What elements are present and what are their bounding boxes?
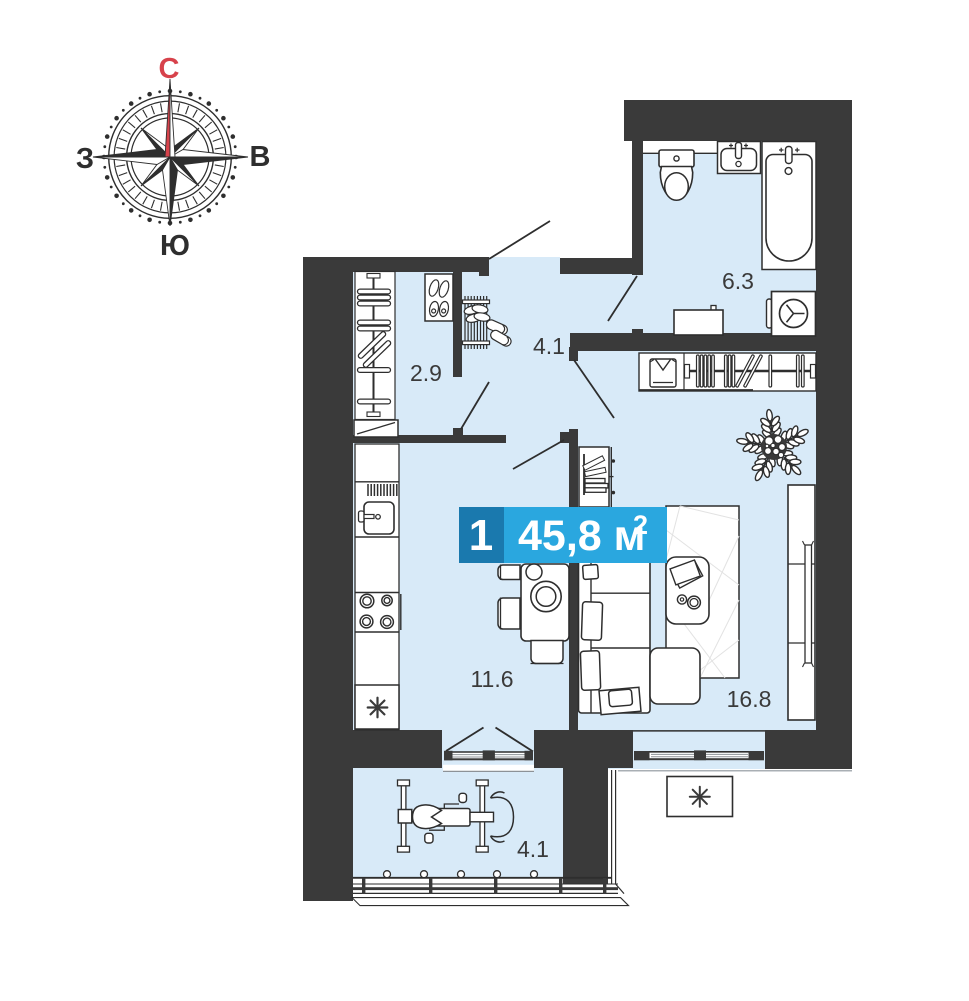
svg-text:2: 2 [633,510,648,540]
svg-text:4.1: 4.1 [533,333,565,359]
svg-text:С: С [159,53,180,85]
svg-text:2.9: 2.9 [410,360,442,386]
svg-text:45,8 м: 45,8 м [518,512,645,560]
svg-text:З: З [76,143,94,175]
svg-text:4.1: 4.1 [517,836,549,862]
svg-text:11.6: 11.6 [470,666,513,692]
svg-text:Ю: Ю [160,230,190,262]
svg-text:В: В [250,141,271,173]
svg-text:6.3: 6.3 [722,268,754,294]
svg-text:1: 1 [469,511,493,560]
svg-text:16.8: 16.8 [727,686,772,712]
